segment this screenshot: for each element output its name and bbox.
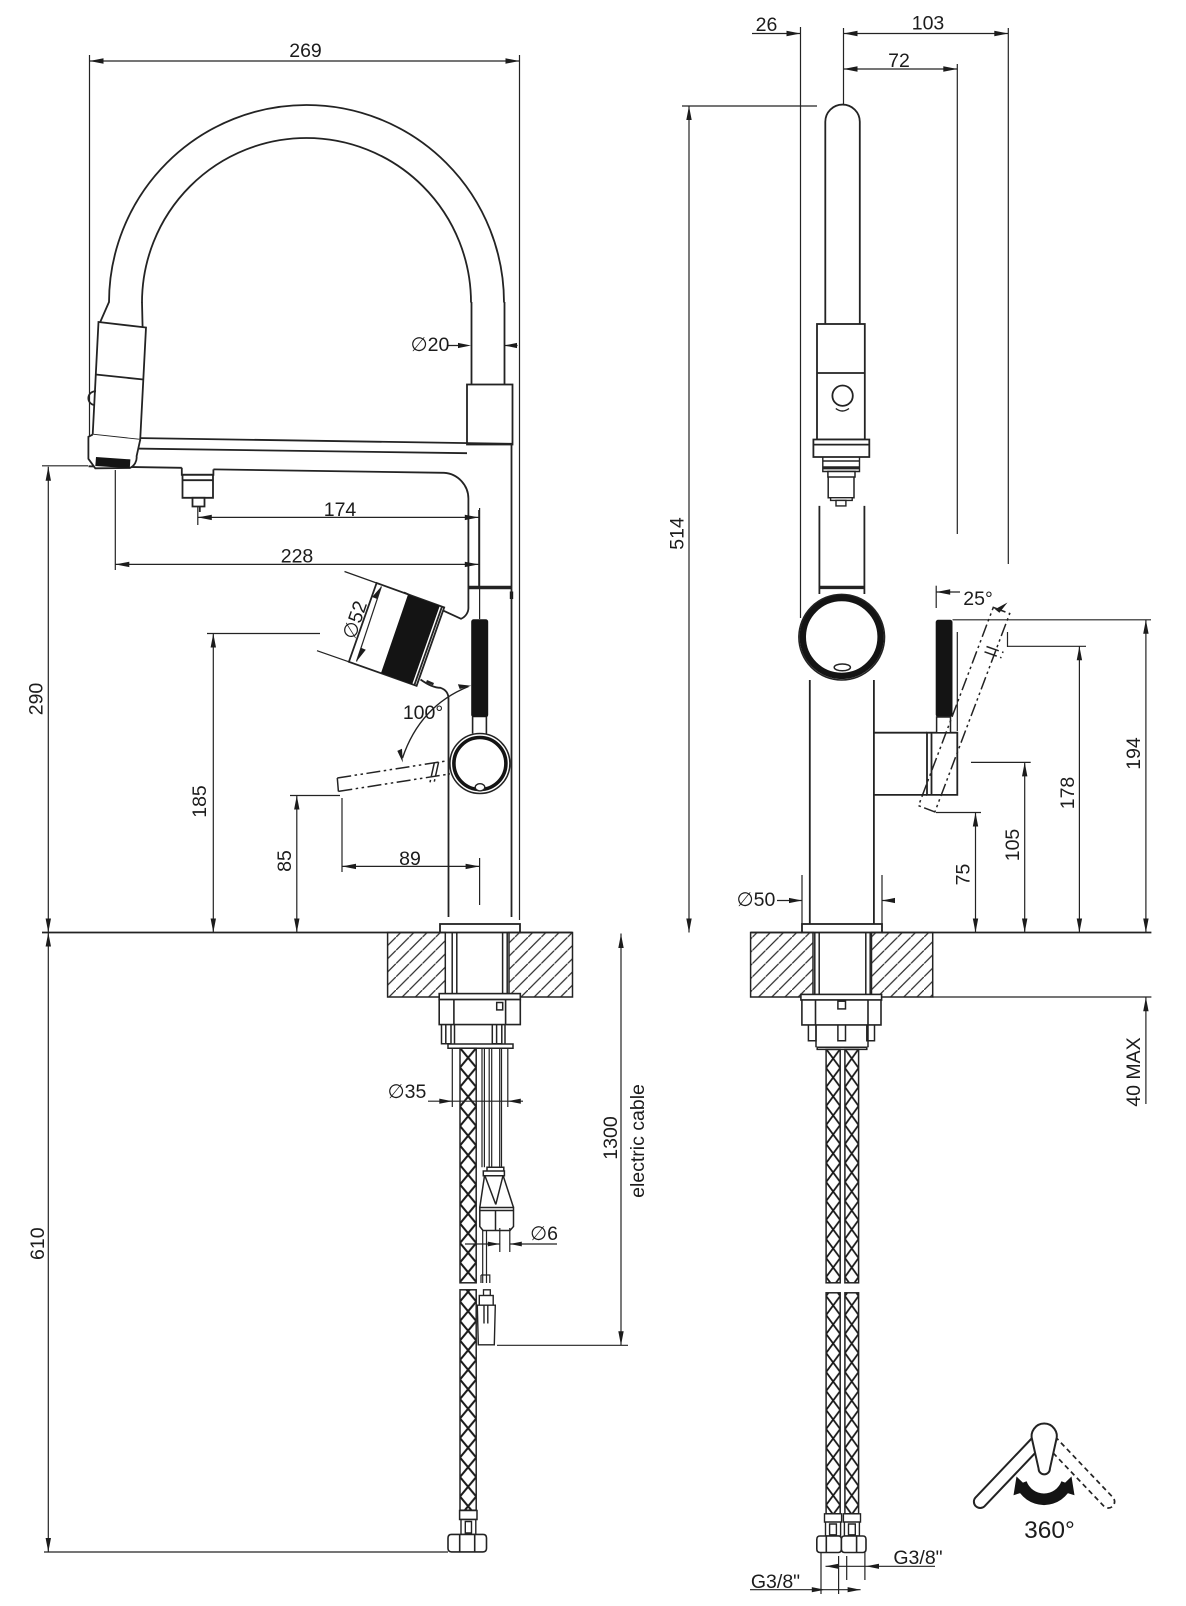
svg-text:1300: 1300 xyxy=(600,1116,622,1160)
svg-text:40 MAX: 40 MAX xyxy=(1123,1037,1145,1106)
svg-text:G3/8": G3/8" xyxy=(893,1547,942,1569)
svg-text:∅50: ∅50 xyxy=(737,889,776,911)
svg-text:75: 75 xyxy=(953,864,975,886)
svg-text:269: 269 xyxy=(289,40,322,62)
svg-text:194: 194 xyxy=(1123,737,1145,770)
svg-text:514: 514 xyxy=(667,517,689,550)
svg-text:178: 178 xyxy=(1057,777,1079,810)
svg-text:105: 105 xyxy=(1002,829,1024,862)
svg-text:360°: 360° xyxy=(1024,1517,1075,1544)
svg-text:290: 290 xyxy=(26,683,48,716)
svg-text:174: 174 xyxy=(324,499,357,521)
svg-text:26: 26 xyxy=(756,14,778,36)
svg-text:100°: 100° xyxy=(403,702,443,724)
svg-text:electric cable: electric cable xyxy=(627,1084,649,1198)
svg-text:∅35: ∅35 xyxy=(388,1081,427,1103)
svg-text:72: 72 xyxy=(888,50,910,72)
svg-text:185: 185 xyxy=(189,785,211,818)
svg-text:228: 228 xyxy=(281,546,314,568)
svg-text:G3/8": G3/8" xyxy=(751,1571,800,1593)
svg-text:103: 103 xyxy=(912,13,945,35)
svg-text:25°: 25° xyxy=(963,588,993,610)
svg-text:85: 85 xyxy=(274,850,296,872)
svg-text:∅20: ∅20 xyxy=(411,334,450,356)
svg-text:610: 610 xyxy=(27,1227,49,1260)
svg-text:89: 89 xyxy=(399,848,421,870)
svg-text:∅6: ∅6 xyxy=(530,1223,558,1245)
